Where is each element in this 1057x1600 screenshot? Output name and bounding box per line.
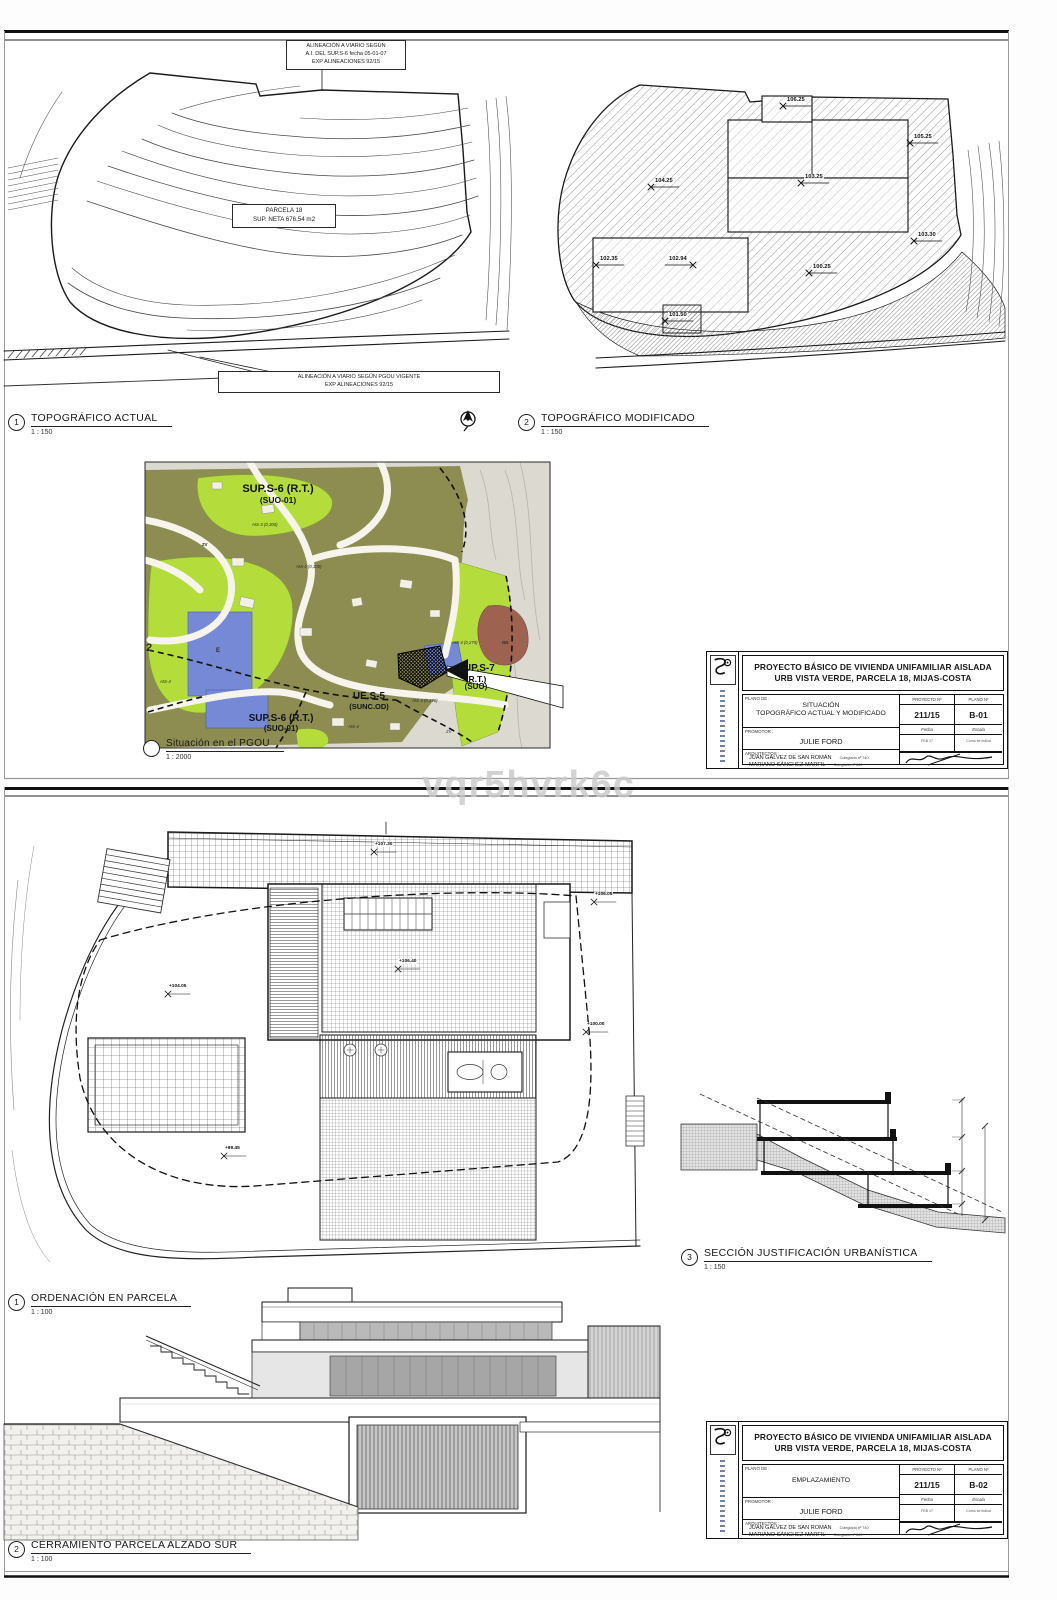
architect-college-no: Colegiado nº 669 [833,763,862,768]
pgou-label-od: OD [502,640,508,645]
caption-ordenacion: 1 ORDENACIÓN EN PARCELA 1 : 100 [8,1292,191,1316]
titleblock-grid: PLANO DE : SITUACIÓN TOPOGRÁFICO ACTUAL … [742,694,1004,765]
caption-title: Situación en el PGOU [166,738,284,752]
zone-name: SUP.S-6 (R.T.) [222,484,334,496]
promotor-label: PROMOTOR : [745,1499,773,1504]
plano-value: TOPOGRÁFICO ACTUAL Y MODIFICADO [743,710,899,718]
zone-code: (SUO-01) [222,496,334,505]
architects-logo [710,1425,736,1455]
titleblock-main: PROYECTO BÁSICO DE VIVIENDA UNIFAMILIAR … [739,1422,1007,1538]
architect-college-no: Colegiado nº 669 [833,1533,862,1538]
escala-label: Escala [955,1495,1002,1505]
architects-logo [710,655,736,685]
caption-topografico-actual: 1 TOPOGRÁFICO ACTUAL 1 : 150 [8,412,172,436]
caption-cerramiento: 2 CERRAMIENTO PARCELA ALZADO SUR 1 : 100 [8,1539,251,1563]
caption-scale: 1 : 2000 [166,754,284,761]
pgou-label-ais3: AIS-3 (0,300) [252,522,278,527]
escala-value: Como se indica [955,1505,1002,1517]
proyecto-n-label: PROYECTO Nº [900,1465,954,1475]
titleblock-main: PROYECTO BÁSICO DE VIVIENDA UNIFAMILIAR … [739,652,1007,768]
plano-n-value: B-02 [955,1475,1002,1495]
fecha-value: FEB 17 [900,1505,954,1517]
spot-elevation: +106.40 [398,959,417,964]
project-title-line2: URB VISTA VERDE, PARCELA 18, MIJAS-COSTA [743,1443,1003,1454]
titleblock-side-text [720,1460,725,1532]
caption-number: 1 [8,414,25,431]
spot-elevation: 104.25 [654,178,674,184]
proyecto-n-label: PROYECTO Nº [900,695,954,705]
zone-name: UE.S-5 [342,692,396,703]
caption-number: 2 [8,1541,25,1558]
spot-elevation: 105.25 [913,134,933,140]
project-title: PROYECTO BÁSICO DE VIVIENDA UNIFAMILIAR … [742,655,1004,691]
promotor-label: PROMOTOR : [745,729,773,734]
caption-seccion: 3 SECCIÓN JUSTIFICACIÓN URBANÍSTICA 1 : … [681,1247,932,1271]
arquitectos-label: ARQUITECTOS : [745,751,779,756]
topo-modificado-drawing [558,85,1005,368]
architect-name: JUAN GÁLVEZ DE SAN ROMÁN [749,755,832,762]
pgou-label-zv: ZV [446,729,452,734]
plano-n-label: PLANO Nº [955,695,1002,705]
pgou-label-ais4: AIS-4 [348,724,359,729]
caption-title: SECCIÓN JUSTIFICACIÓN URBANÍSTICA [704,1247,932,1262]
watermark-text: vqr5hvrk6c [422,764,635,807]
project-title-line2: URB VISTA VERDE, PARCELA 18, MIJAS-COSTA [743,673,1003,684]
pgou-label-ais4: AIS-4 [160,679,171,684]
caption-number: 2 [518,414,535,431]
caption-title: ORDENACIÓN EN PARCELA [31,1292,191,1307]
spot-elevation: 106.25 [786,97,806,103]
parcela-label-box: PARCELA 18 SUP. NETA 676,54 m2 [232,204,336,228]
plano-n-value: B-01 [955,705,1002,725]
signature-area [900,1521,1002,1536]
caption-scale: 1 : 150 [31,429,172,436]
alignment-note-top: ALINEACIÓN A VIARIO SEGÚN A.I. DEL SUP.S… [286,40,406,70]
spot-elevation: 103.25 [804,174,824,180]
project-title: PROYECTO BÁSICO DE VIVIENDA UNIFAMILIAR … [742,1425,1004,1461]
spot-elevation: +107.30 [374,842,393,847]
zone-code: (SUO) [452,683,500,691]
plano-n-label: PLANO Nº [955,1465,1002,1475]
arquitectos-label: ARQUITECTOS : [745,1521,779,1526]
proyecto-n-value: 211/15 [900,705,954,725]
zone-name: SUP.S-7 [452,664,500,675]
fecha-value: FEB 17 [900,735,954,747]
note-line: ALINEACIÓN A VIARIO SEGÚN PGOU VIGENTE [222,374,496,382]
plano-de-label: PLANO DE : [745,696,770,701]
spot-elevation: 103.30 [917,232,937,238]
caption-number: 1 [8,1294,25,1311]
zone-code: (SUO-01) [226,725,336,733]
pgou-label-corner: 2 [146,642,152,654]
pgou-label-zv: ZV [202,542,208,547]
architect-name: JUAN GÁLVEZ DE SAN ROMÁN [749,1525,832,1532]
pgou-label-ue-s5: UE.S-5 (SUNC.OD) [342,692,396,710]
pgou-label-ais4: AIS-4 (0,270) [412,698,438,703]
parcela-area: SUP. NETA 676,54 m2 [236,216,332,225]
spot-elevation: 102.35 [599,256,619,262]
spot-elevation: 100.25 [812,264,832,270]
signature-area [900,751,1002,766]
titleblock-side-strip [707,1422,739,1538]
caption-title: TOPOGRÁFICO ACTUAL [31,412,172,427]
project-title-line1: PROYECTO BÁSICO DE VIVIENDA UNIFAMILIAR … [743,1432,1003,1443]
pgou-label-ais4: AIS-4 (0,275) [452,640,478,645]
spot-elevation: +104.05 [168,984,187,989]
caption-number: 3 [681,1249,698,1266]
titleblock-side-text [720,690,725,762]
fecha-label: Fecha [900,1495,954,1505]
plano-value: EMPLAZAMIENTO [743,1477,899,1485]
parcela-name: PARCELA 18 [236,207,332,216]
pgou-label-ais3: AIS-3 (0,300) [296,564,322,569]
caption-topografico-modificado: 2 TOPOGRÁFICO MODIFICADO 1 : 150 [518,412,709,436]
spot-elevation: +99.45 [224,1146,241,1151]
project-title-line1: PROYECTO BÁSICO DE VIVIENDA UNIFAMILIAR … [743,662,1003,673]
spot-elevation: 101.50 [668,312,688,318]
pgou-label-sup-s7: SUP.S-7 (R.T.) (SUO) [452,664,500,692]
architect-name: MARIANO SÁNCHEZ MARFIL [749,762,825,769]
drawing-sheets-page: ALINEACIÓN A VIARIO SEGÚN A.I. DEL SUP.S… [0,0,1057,1600]
pgou-label-e: E [216,648,220,654]
zone-code: (SUNC.OD) [342,703,396,711]
architect-name: MARIANO SÁNCHEZ MARFIL [749,1532,825,1539]
plano-de-label: PLANO DE : [745,1466,770,1471]
note-line: A.I. DEL SUP.S-6 fecha 05-01-07 [290,51,402,59]
caption-number [143,740,160,757]
pgou-label-sup-s6-bottom: SUP.S-6 (R.T.) (SUO-01) [226,714,336,733]
zone-name: SUP.S-6 (R.T.) [226,714,336,725]
fecha-label: Fecha [900,725,954,735]
note-line: EXP ALINEACIONES 92/15 [222,382,496,390]
note-line: ALINEACIÓN A VIARIO SEGÚN [290,43,402,51]
titleblock-b02: PROYECTO BÁSICO DE VIVIENDA UNIFAMILIAR … [706,1421,1008,1539]
note-line: EXP ALINEACIONES 92/15 [290,59,402,67]
escala-value: Como se indica [955,735,1002,747]
caption-title: TOPOGRÁFICO MODIFICADO [541,412,709,427]
spot-elevation: 102.94 [668,256,688,262]
titleblock-b01: PROYECTO BÁSICO DE VIVIENDA UNIFAMILIAR … [706,651,1008,769]
titleblock-side-strip [707,652,739,768]
caption-title: CERRAMIENTO PARCELA ALZADO SUR [31,1539,251,1554]
caption-scale: 1 : 150 [704,1264,932,1271]
caption-scale: 1 : 100 [31,1556,251,1563]
spot-elevation: +106.05 [594,892,613,897]
caption-scale: 1 : 100 [31,1309,191,1316]
titleblock-grid: PLANO DE : EMPLAZAMIENTO PROMOTOR : JULI… [742,1464,1004,1535]
proyecto-n-value: 211/15 [900,1475,954,1495]
alignment-note-bottom: ALINEACIÓN A VIARIO SEGÚN PGOU VIGENTE E… [218,371,500,393]
escala-label: Escala [955,725,1002,735]
architect-college-no: Colegiado nº 740 [840,756,869,761]
caption-scale: 1 : 150 [541,429,709,436]
spot-elevation: +100.00 [586,1022,605,1027]
architect-college-no: Colegiado nº 740 [840,1526,869,1531]
pgou-label-sup-s6-top: SUP.S-6 (R.T.) (SUO-01) [222,484,334,504]
caption-pgou: Situación en el PGOU 1 : 2000 [143,738,284,761]
